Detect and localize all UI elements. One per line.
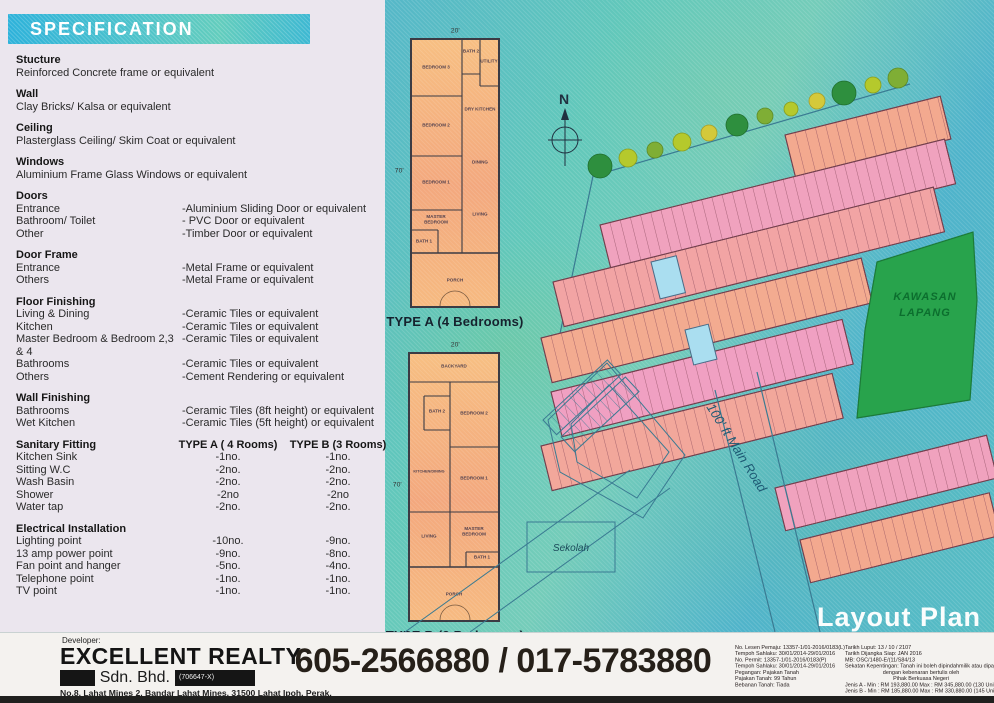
section-heading: Sanitary Fitting: [16, 439, 174, 452]
value-b: -2no.: [282, 464, 394, 477]
value-b: -1no.: [282, 585, 394, 598]
contact-phone-numbers: 605-2566880 / 017-5783880: [278, 642, 728, 681]
specification-title: SPECIFICATION: [30, 19, 194, 40]
spec-row: TV point-1no.-1no.: [16, 585, 378, 598]
spec-row: Fan point and hanger-5no.-4no.: [16, 560, 378, 573]
school-lot: Sekolah: [527, 522, 615, 572]
row-label: Entrance: [16, 203, 182, 216]
site-layout-plan: N KAWASAN LAPANG: [385, 0, 994, 632]
value-a: -2no: [174, 489, 282, 502]
spec-row: Wet Kitchen-Ceramic Tiles (5ft height) o…: [16, 417, 378, 430]
row-label: Lighting point: [16, 535, 174, 548]
section-heading: Wall: [16, 88, 378, 101]
row-label: Telephone point: [16, 573, 174, 586]
row-value: -Timber Door or equivalent: [182, 228, 378, 241]
spec-row: Others-Cement Rendering or equivalent: [16, 371, 378, 384]
row-value: -Cement Rendering or equivalent: [182, 371, 378, 384]
row-label: Bathrooms: [16, 405, 182, 418]
row-value: -Ceramic Tiles (8ft height) or equivalen…: [182, 405, 378, 418]
spec-row: Living & Dining-Ceramic Tiles or equival…: [16, 308, 378, 321]
value-b: -8no.: [282, 548, 394, 561]
value-a: -1no.: [174, 585, 282, 598]
row-value: -Ceramic Tiles (5ft height) or equivalen…: [182, 417, 378, 430]
brochure-page: SPECIFICATION Stucture Reinforced Concre…: [0, 0, 994, 703]
company-registration: (706647-X): [179, 674, 214, 681]
value-a: -5no.: [174, 560, 282, 573]
sanitary-header-row: Sanitary Fitting TYPE A ( 4 Rooms) TYPE …: [16, 439, 378, 452]
row-value: - PVC Door or equivalent: [182, 215, 378, 228]
section-heading: Windows: [16, 156, 378, 169]
open-field-area: KAWASAN LAPANG: [857, 232, 977, 418]
spec-section-door-frame: Door Frame Entrance-Metal Frame or equiv…: [16, 249, 378, 287]
row-label: Water tap: [16, 501, 174, 514]
row-label: Kitchen: [16, 321, 182, 334]
section-line: Aluminium Frame Glass Windows or equival…: [16, 169, 378, 182]
spec-row: Lighting point-10no.-9no.: [16, 535, 378, 548]
section-line: Clay Bricks/ Kalsa or equivalent: [16, 101, 378, 114]
section-heading: Wall Finishing: [16, 392, 378, 405]
spec-row: 13 amp power point-9no.-8no.: [16, 548, 378, 561]
company-suffix-row: Sdn. Bhd. (706647-X): [60, 669, 255, 686]
spec-section-doors: Doors Entrance-Aluminium Sliding Door or…: [16, 190, 378, 240]
spec-row: Other-Timber Door or equivalent: [16, 228, 378, 241]
row-label: Wash Basin: [16, 476, 174, 489]
section-heading: Door Frame: [16, 249, 378, 262]
company-suffix: Sdn. Bhd.: [95, 669, 175, 687]
row-label: 13 amp power point: [16, 548, 174, 561]
specification-header-band: SPECIFICATION: [8, 14, 310, 44]
col-header-type-b: TYPE B (3 Rooms): [282, 439, 394, 452]
spec-row: Kitchen-Ceramic Tiles or equivalent: [16, 321, 378, 334]
section-heading: Floor Finishing: [16, 296, 378, 309]
spec-row: Wash Basin-2no.-2no.: [16, 476, 378, 489]
open-field-label-line1: KAWASAN: [893, 291, 956, 303]
value-a: -9no.: [174, 548, 282, 561]
row-label: Wet Kitchen: [16, 417, 182, 430]
row-label: TV point: [16, 585, 174, 598]
section-heading: Electrical Installation: [16, 523, 378, 536]
black-bar-right: (706647-X): [175, 670, 255, 686]
row-value: -Ceramic Tiles or equivalent: [182, 321, 378, 334]
row-label: Shower: [16, 489, 174, 502]
row-label: Fan point and hanger: [16, 560, 174, 573]
value-a: -1no.: [174, 451, 282, 464]
spec-section-wall-finishing: Wall Finishing Bathrooms-Ceramic Tiles (…: [16, 392, 378, 430]
specification-panel: SPECIFICATION Stucture Reinforced Concre…: [0, 0, 385, 632]
spec-row: Bathrooms-Ceramic Tiles or equivalent: [16, 358, 378, 371]
row-label: Sitting W.C: [16, 464, 174, 477]
row-label: Bathrooms: [16, 358, 182, 371]
section-heading: Doors: [16, 190, 378, 203]
legal-text-left-column: No. Lesen Pemaju: 13357-1/01-2016/0183(L…: [735, 645, 852, 689]
value-b: -2no: [282, 489, 394, 502]
value-b: -1no.: [282, 451, 394, 464]
bottom-scan-edge: [0, 696, 994, 703]
row-label: Bathroom/ Toilet: [16, 215, 182, 228]
section-line: Reinforced Concrete frame or equivalent: [16, 67, 378, 80]
legal-line: Bebanan Tanah: Tiada: [735, 682, 852, 688]
spec-section-floor-finishing: Floor Finishing Living & Dining-Ceramic …: [16, 296, 378, 384]
spec-row: Telephone point-1no.-1no.: [16, 573, 378, 586]
value-b: -9no.: [282, 535, 394, 548]
spec-row: Kitchen Sink-1no.-1no.: [16, 451, 378, 464]
row-value: -Ceramic Tiles or equivalent: [182, 358, 378, 371]
spec-row: Entrance-Aluminium Sliding Door or equiv…: [16, 203, 378, 216]
spec-section-structure: Stucture Reinforced Concrete frame or eq…: [16, 54, 378, 79]
legal-text-right-column: Tarikh Luput: 13 / 10 / 2107 Tarikh Dija…: [845, 645, 994, 695]
layout-plan-title: Layout Plan: [817, 602, 981, 632]
section-line: Plasterglass Ceiling/ Skim Coat or equiv…: [16, 135, 378, 148]
value-b: -4no.: [282, 560, 394, 573]
row-label: Entrance: [16, 262, 182, 275]
row-label: Others: [16, 274, 182, 287]
black-bar-left: [60, 670, 95, 686]
value-a: -10no.: [174, 535, 282, 548]
spec-section-wall: Wall Clay Bricks/ Kalsa or equivalent: [16, 88, 378, 113]
compass-n-label: N: [559, 91, 569, 107]
spec-row: Bathrooms-Ceramic Tiles (8ft height) or …: [16, 405, 378, 418]
north-compass: N: [548, 91, 582, 166]
row-label: Other: [16, 228, 182, 241]
spec-row: Sitting W.C-2no.-2no.: [16, 464, 378, 477]
value-a: -2no.: [174, 501, 282, 514]
section-heading: Ceiling: [16, 122, 378, 135]
spec-section-electrical: Electrical Installation Lighting point-1…: [16, 523, 378, 598]
row-label: Others: [16, 371, 182, 384]
spec-row: Others-Metal Frame or equivalent: [16, 274, 378, 287]
specification-body: Stucture Reinforced Concrete frame or eq…: [16, 54, 378, 607]
spec-row: Entrance-Metal Frame or equivalent: [16, 262, 378, 275]
section-heading: Stucture: [16, 54, 378, 67]
value-a: -2no.: [174, 476, 282, 489]
row-value: -Aluminium Sliding Door or equivalent: [182, 203, 378, 216]
row-value: -Ceramic Tiles or equivalent: [182, 308, 378, 321]
row-value: -Metal Frame or equivalent: [182, 274, 378, 287]
legal-line: Jenis B - Min : RM 185,880.00 Max : RM 3…: [845, 689, 994, 695]
footer-bar: Developer: EXCELLENT REALTY Sdn. Bhd. (7…: [0, 632, 994, 703]
open-field-label-line2: LAPANG: [899, 307, 951, 319]
spec-section-windows: Windows Aluminium Frame Glass Windows or…: [16, 156, 378, 181]
spec-section-sanitary: Sanitary Fitting TYPE A ( 4 Rooms) TYPE …: [16, 439, 378, 514]
spec-row: Water tap-2no.-2no.: [16, 501, 378, 514]
value-a: -2no.: [174, 464, 282, 477]
spec-section-ceiling: Ceiling Plasterglass Ceiling/ Skim Coat …: [16, 122, 378, 147]
row-label: Living & Dining: [16, 308, 182, 321]
spec-row: Shower-2no-2no: [16, 489, 378, 502]
value-b: -2no.: [282, 501, 394, 514]
value-b: -1no.: [282, 573, 394, 586]
value-a: -1no.: [174, 573, 282, 586]
row-value: -Metal Frame or equivalent: [182, 262, 378, 275]
col-header-type-a: TYPE A ( 4 Rooms): [174, 439, 282, 452]
value-b: -2no.: [282, 476, 394, 489]
spec-row: Bathroom/ Toilet- PVC Door or equivalent: [16, 215, 378, 228]
row-value: -Ceramic Tiles or equivalent: [182, 333, 378, 358]
spec-row: Master Bedroom & Bedroom 2,3 & 4-Ceramic…: [16, 333, 378, 358]
school-label: Sekolah: [553, 543, 590, 554]
row-label: Kitchen Sink: [16, 451, 174, 464]
row-label: Master Bedroom & Bedroom 2,3 & 4: [16, 333, 182, 358]
